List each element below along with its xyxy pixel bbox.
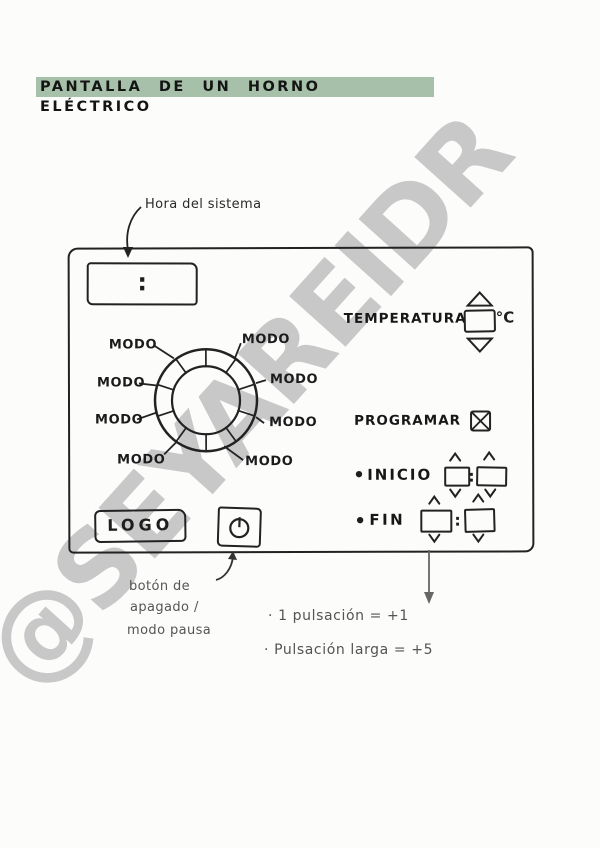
start-minute-up-button[interactable]	[481, 450, 497, 461]
pulse-note-2: · Pulsación larga = +5	[264, 642, 433, 658]
temperature-unit: °C	[496, 308, 515, 326]
oven-display-panel: :	[68, 246, 535, 553]
clock-value: :	[137, 268, 147, 296]
start-time-separator: :	[468, 467, 474, 486]
notebook-page: PANTALLA DE UN HORNO ELÉCTRICO Hora del …	[0, 0, 600, 848]
start-bullet: •	[353, 471, 365, 481]
start-time-label: INICIO	[367, 466, 432, 484]
end-hour-up-button[interactable]	[426, 495, 442, 506]
end-minute-up-button[interactable]	[470, 493, 486, 504]
power-button[interactable]	[217, 506, 262, 547]
temperature-up-button[interactable]	[466, 290, 494, 307]
program-label: PROGRAMAR	[354, 413, 461, 429]
clock-annotation: Hora del sistema	[145, 197, 261, 212]
end-bullet: •	[354, 517, 366, 527]
start-hour-display	[444, 467, 470, 487]
mode-label: MODO	[269, 415, 317, 430]
temperature-value-display	[464, 309, 496, 333]
power-annotation-line2: apagado /	[130, 600, 199, 615]
mode-label: MODO	[270, 372, 318, 387]
logo-text: LOGO	[107, 515, 173, 535]
pulse-notes-arrow	[417, 550, 441, 606]
pulse-note-1: · 1 pulsación = +1	[268, 608, 409, 624]
temperature-label: TEMPERATURA	[344, 311, 467, 327]
program-checkbox[interactable]	[469, 409, 492, 432]
power-annotation-line3: modo pausa	[127, 623, 211, 638]
end-hour-down-button[interactable]	[426, 533, 442, 544]
end-hour-display	[420, 510, 452, 533]
end-minute-display	[464, 508, 496, 533]
mode-label: MODO	[109, 337, 157, 352]
mode-label: MODO	[95, 412, 143, 427]
mode-label: MODO	[97, 375, 145, 390]
page-title: PANTALLA DE UN HORNO ELÉCTRICO	[36, 77, 434, 97]
start-hour-down-button[interactable]	[447, 488, 463, 499]
system-clock-display: :	[87, 262, 198, 305]
end-time-separator: :	[454, 511, 460, 530]
power-annotation-line1: botón de	[129, 579, 190, 594]
mode-label: MODO	[117, 452, 165, 467]
power-icon	[226, 513, 253, 542]
mode-label: MODO	[242, 332, 290, 347]
power-annotation-arrow	[205, 548, 241, 584]
mode-label: MODO	[245, 454, 293, 469]
end-minute-down-button[interactable]	[470, 533, 486, 544]
end-time-label: FIN	[369, 511, 405, 529]
logo: LOGO	[94, 509, 186, 543]
start-hour-up-button[interactable]	[447, 452, 463, 463]
start-minute-display	[476, 466, 507, 486]
temperature-down-button[interactable]	[466, 336, 494, 353]
